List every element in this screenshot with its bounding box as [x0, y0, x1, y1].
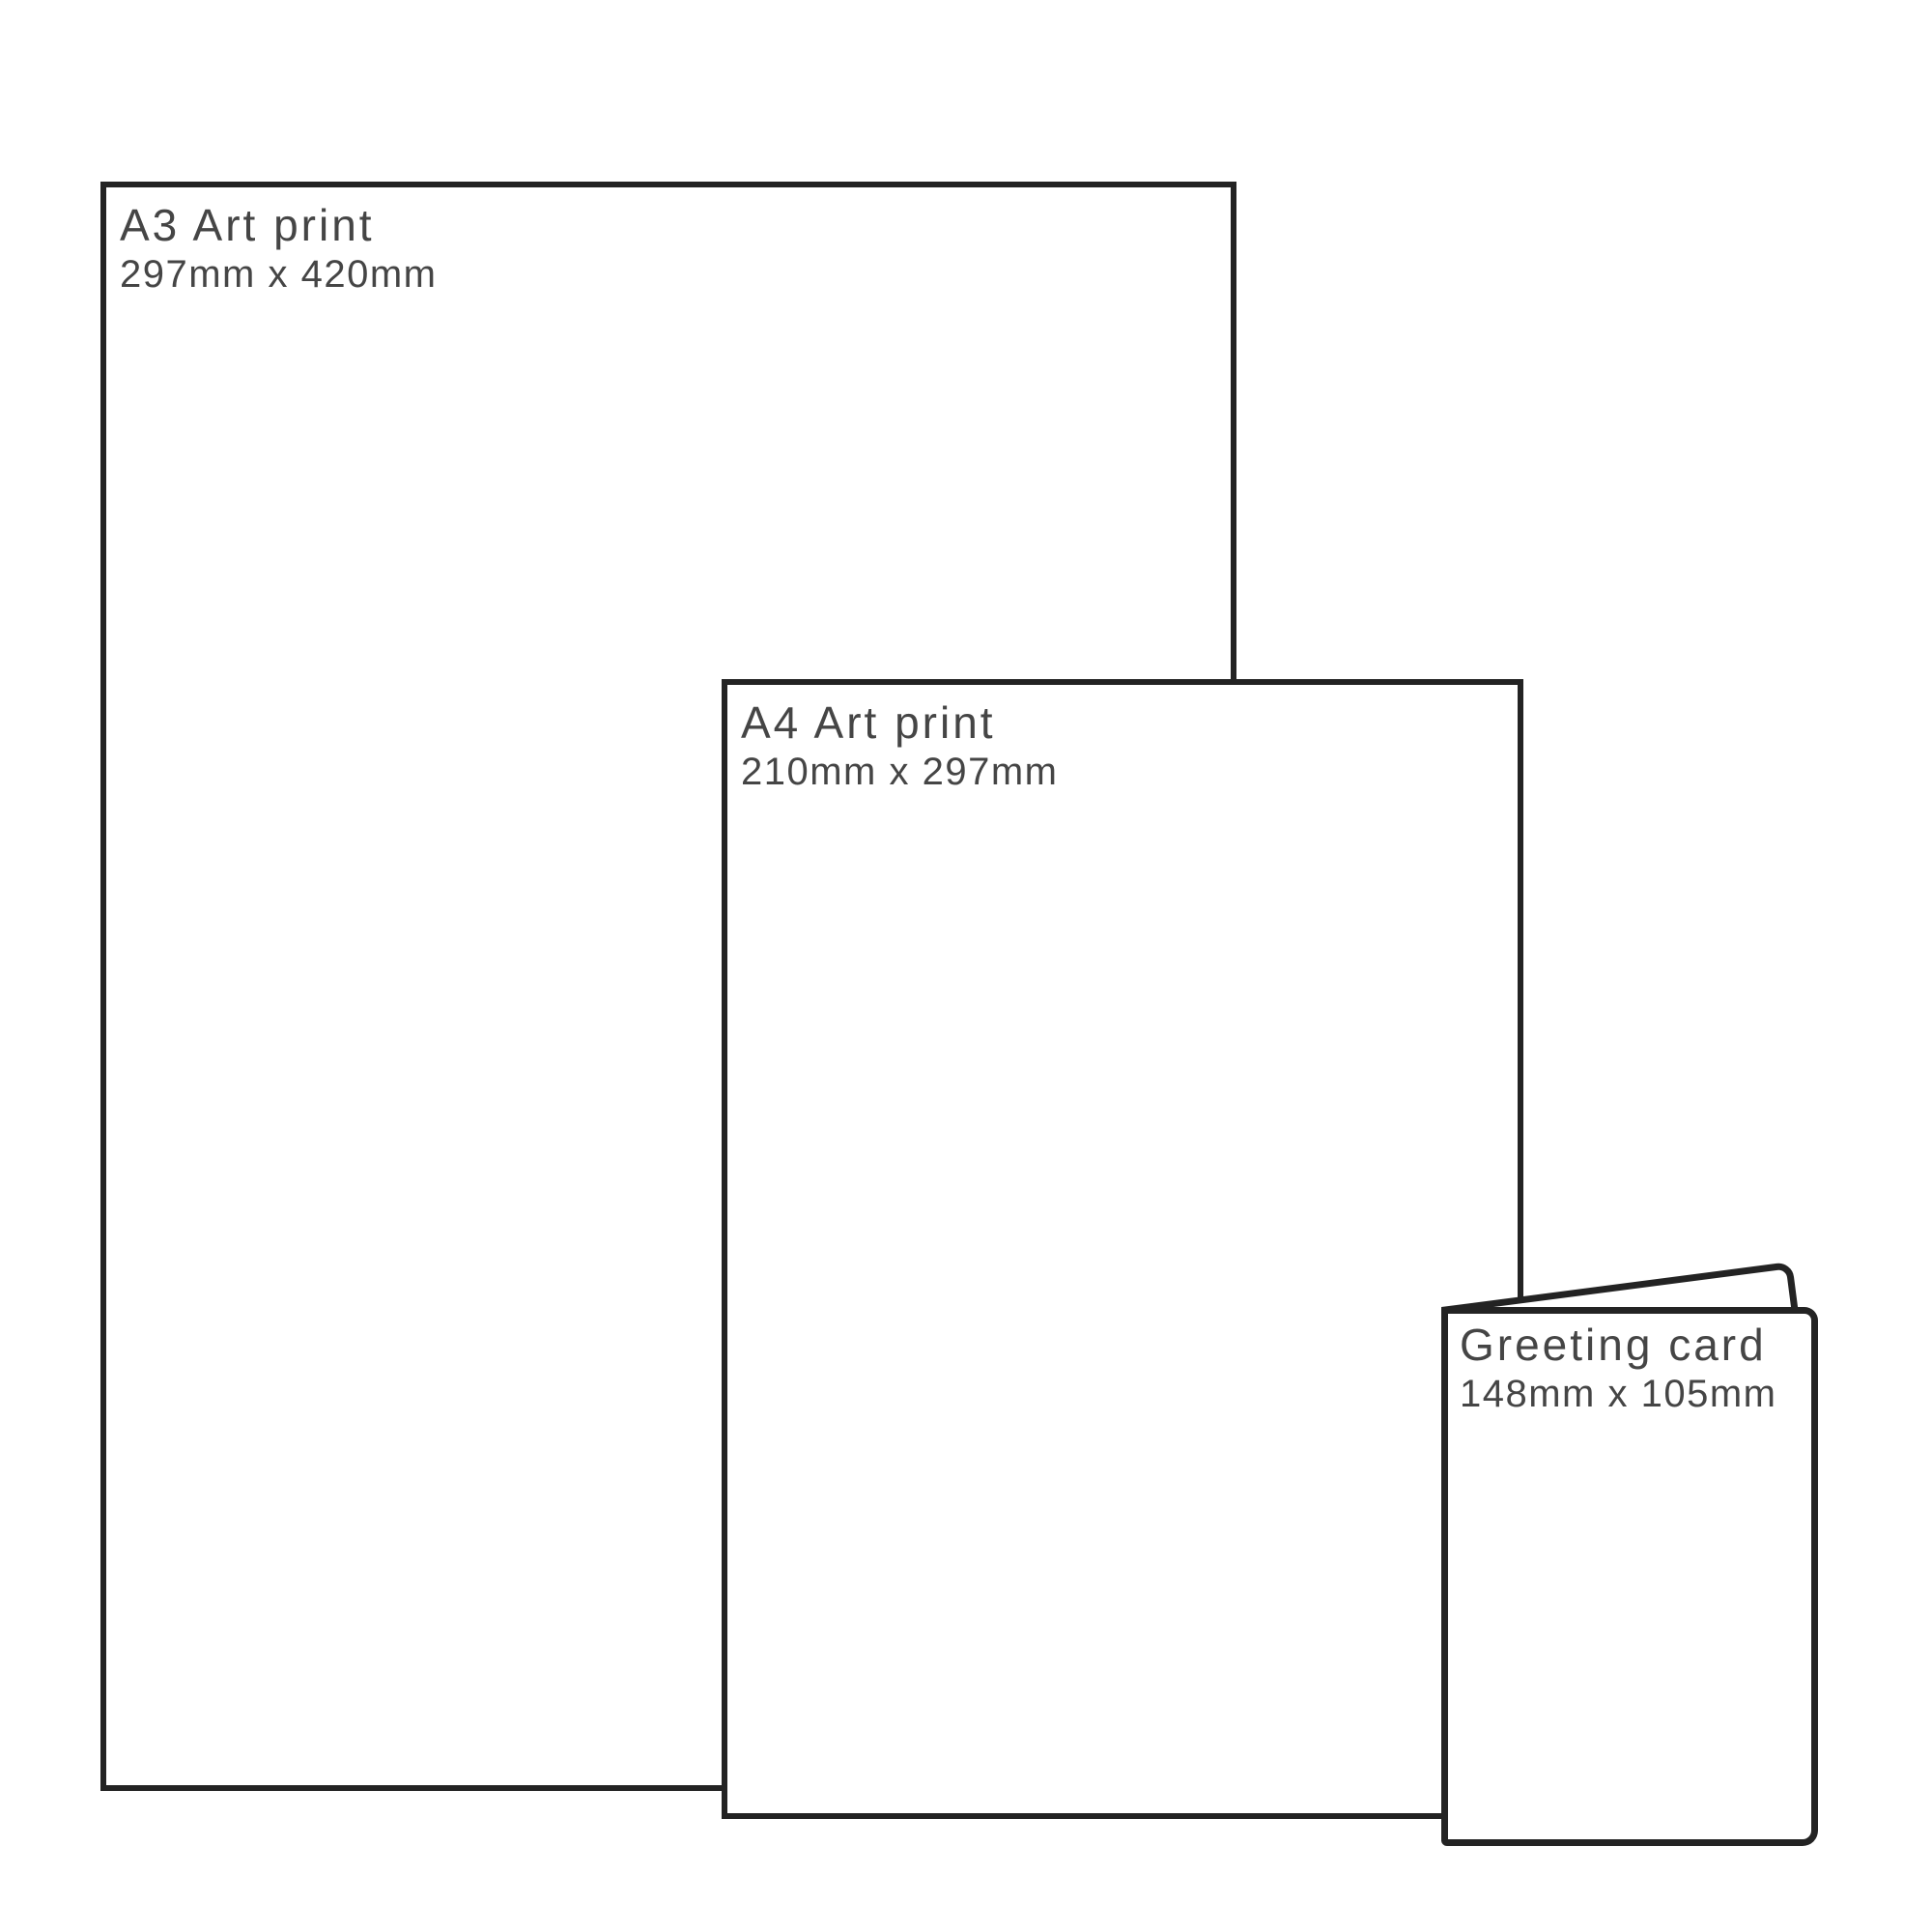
- a4-label: A4 Art print 210mm x 297mm: [727, 685, 1518, 806]
- a3-dimensions: 297mm x 420mm: [120, 252, 1217, 297]
- a4-title: A4 Art print: [741, 696, 1504, 750]
- a4-dimensions: 210mm x 297mm: [741, 750, 1504, 794]
- a3-title: A3 Art print: [120, 199, 1217, 252]
- greeting-card-title: Greeting card: [1460, 1319, 1800, 1372]
- a4-print-outline: A4 Art print 210mm x 297mm: [722, 679, 1523, 1819]
- greeting-card-front: Greeting card 148mm x 105mm: [1441, 1307, 1818, 1846]
- a3-label: A3 Art print 297mm x 420mm: [106, 187, 1231, 308]
- greeting-card-dimensions: 148mm x 105mm: [1460, 1372, 1800, 1416]
- greeting-card-label: Greeting card 148mm x 105mm: [1448, 1314, 1811, 1421]
- size-comparison-diagram: A3 Art print 297mm x 420mm A4 Art print …: [0, 0, 1932, 1932]
